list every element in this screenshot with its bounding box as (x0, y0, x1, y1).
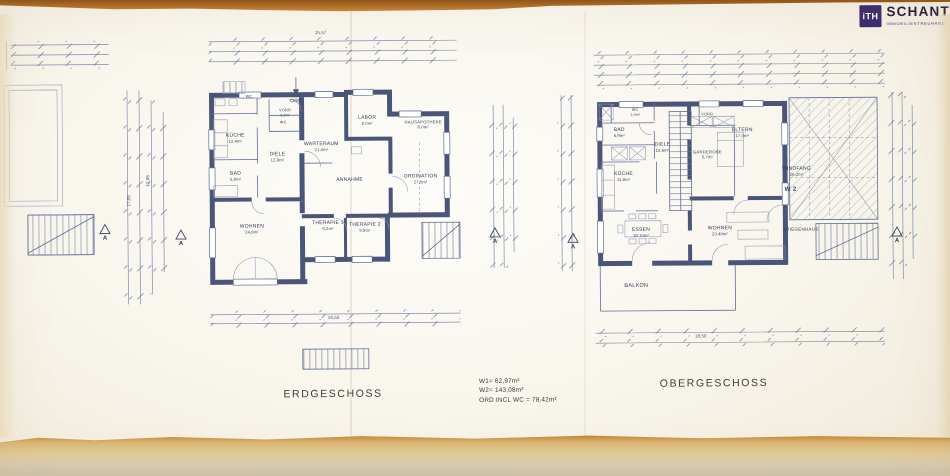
room-name: VORR (701, 112, 713, 116)
room-label-eg-therapie1: THERAPIE 19,2m² (312, 220, 344, 232)
section-marker-a5: A (895, 238, 899, 244)
room-name: KÜCHE (614, 171, 633, 177)
room-label-og-diele: DIELE12,6m² (654, 142, 670, 154)
room-name: DIELE (654, 142, 670, 148)
room-name: WARTERAUM (304, 141, 339, 147)
section-marker-a2: A (179, 241, 183, 247)
room-name: WOHNEN (708, 225, 732, 231)
drawing-sheet: WC KÜCHE12,4m² ORD VORR3,2m² WC LABOR8,0… (0, 0, 950, 476)
room-name: VORR (279, 108, 291, 112)
scan-edge-right (936, 14, 950, 438)
area-summary: W1= 62,97m² W2= 143,08m² ORD INCL WC = 7… (479, 376, 557, 404)
room-label-og-vorr: VORR (701, 112, 713, 117)
paper-crease-right (584, 12, 586, 436)
room-label-og-eltern: ELTERN17,0m² (732, 127, 753, 139)
room-name: WC (280, 120, 287, 124)
torn-paper-edge-bottom (0, 434, 950, 476)
room-label-eg-kueche: KÜCHE12,4m² (226, 133, 245, 145)
room-name: WC (632, 108, 639, 112)
room-area: 3,2m² (279, 113, 291, 118)
section-marker-a3: A (493, 239, 497, 245)
room-label-og-wohnen: WOHNEN23,40m² (708, 225, 732, 237)
room-area: 12,4m² (226, 139, 245, 144)
section-letter: A (493, 239, 497, 245)
room-name: THERAPIE 1 (312, 220, 344, 226)
room-label-eg-wohnen: WOHNEN24,8m² (240, 223, 264, 235)
summary-line-w1: W1= 62,97m² (479, 376, 557, 386)
dim-left-a: 12,95 (145, 175, 150, 187)
section-letter: A (179, 241, 183, 247)
room-area: 1,9m² (630, 113, 640, 118)
room-name: ORDINATION (404, 173, 438, 179)
room-name: LABOR (358, 115, 376, 121)
room-label-eg-warteraum: WARTERAUM21,6m² (304, 141, 339, 153)
room-label-og-garderobe: GARDEROBE5,7m² (693, 149, 722, 160)
room-label-og-essen: ESSEN18,10m² (632, 227, 650, 239)
room-label-og-stiegenhaus: STIEGENHAUS (783, 227, 818, 233)
unit-w2-tag: W 2 (785, 187, 797, 193)
room-area: 12,6m² (655, 148, 671, 153)
title-text: ERDGESCHOSS (283, 388, 382, 401)
room-label-og-bad: BAD6,9m² (614, 127, 625, 139)
room-name: BAD (230, 171, 241, 177)
room-label-eg-wc1: WC (246, 95, 253, 100)
room-label-eg-diele: DIELE12,8m² (270, 151, 286, 163)
room-label-og-windfang: WINDFANG26,2m² (782, 166, 811, 178)
room-label-eg-ordination: ORDINATION27,5m² (404, 173, 438, 185)
room-label-eg-ord: ORD (290, 98, 302, 104)
dimension-chains (7, 33, 918, 351)
room-name: WOHNEN (240, 223, 264, 229)
room-label-og-kueche: KÜCHE11,8m² (614, 171, 633, 183)
room-area: 23,40m² (708, 231, 732, 236)
logo-badge-text: iTH (862, 11, 878, 21)
dim-value: 17,05 (126, 195, 131, 207)
room-area: 21,6m² (304, 147, 339, 152)
title-obergeschoss: OBERGESCHOSS (660, 377, 769, 390)
room-label-eg-therapie2: THERAPIE 29,8m² (349, 222, 381, 234)
dim-og-bottom: 18,50 (695, 333, 707, 338)
title-text: OBERGESCHOSS (660, 377, 769, 390)
room-area: 6,9m² (614, 133, 625, 138)
room-area: 27,5m² (404, 180, 438, 185)
room-label-eg-labor: LABOR8,0m² (358, 115, 376, 127)
dim-eg-top: 15,57 (315, 30, 327, 35)
room-area: 9,8m² (349, 228, 381, 233)
room-name: ESSEN (632, 227, 650, 233)
section-marker-a4: A (571, 244, 575, 250)
room-name: BAD (614, 127, 625, 133)
unit-label: W 2 (785, 187, 797, 193)
room-label-eg-wc2: WC (280, 120, 287, 125)
room-area: 17,0m² (732, 133, 753, 138)
dim-value: 18,50 (695, 333, 707, 338)
summary-line-ord: ORD INCL WC = 78,42m² (479, 395, 557, 405)
room-name: WINDFANG (782, 166, 811, 172)
room-area: 18,10m² (632, 233, 650, 238)
section-marker-a1: A (103, 236, 107, 242)
room-area: 9,2m² (312, 226, 344, 231)
room-label-eg-bad: BAD5,8m² (230, 171, 241, 183)
room-label-og-balkon: BALKON (624, 283, 648, 290)
external-building (4, 85, 94, 256)
room-area: 24,8m² (240, 230, 264, 235)
dim-value: 18,50 (328, 315, 340, 320)
room-area: 5,8m² (230, 177, 241, 182)
room-area: 8,0m² (358, 121, 376, 126)
dim-left-b: 17,05 (126, 195, 131, 207)
logo-badge-icon: iTH (859, 5, 881, 27)
section-letter: A (571, 244, 575, 250)
room-name: ORD (290, 98, 302, 104)
floor-plan-drawing (0, 0, 950, 476)
dim-value: 12,95 (145, 175, 150, 187)
room-area: 5,7m² (693, 155, 722, 160)
paper-crease-left (350, 12, 352, 436)
room-label-og-wc: WC1,9m² (630, 108, 640, 117)
room-name: STIEGENHAUS (783, 227, 818, 232)
scan-edge-left (0, 14, 16, 438)
room-area: 26,2m² (782, 172, 811, 177)
room-area: 12,8m² (270, 158, 286, 163)
title-erdgeschoss: ERDGESCHOSS (283, 388, 382, 401)
room-name: BALKON (624, 283, 648, 289)
section-letter: A (103, 236, 107, 242)
dim-value: 15,57 (315, 30, 327, 35)
room-label-eg-hausapotheke: HAUSAPOTHEKE8,0m² (404, 119, 442, 130)
room-name: KÜCHE (226, 133, 245, 139)
scanned-floor-plan-sheet: WC KÜCHE12,4m² ORD VORR3,2m² WC LABOR8,0… (0, 0, 950, 476)
room-name: THERAPIE 2 (349, 222, 381, 228)
room-label-eg-vorr: VORR3,2m² (279, 108, 291, 117)
summary-line-w2: W2= 143,08m² (479, 386, 557, 396)
room-name: WC (246, 95, 253, 99)
room-area: 11,8m² (614, 177, 633, 182)
room-name: DIELE (270, 151, 286, 157)
section-letter: A (895, 238, 899, 244)
room-area: 8,0m² (404, 124, 441, 130)
dim-eg-bottom: 18,50 (328, 315, 340, 320)
room-name: ELTERN (732, 127, 753, 133)
